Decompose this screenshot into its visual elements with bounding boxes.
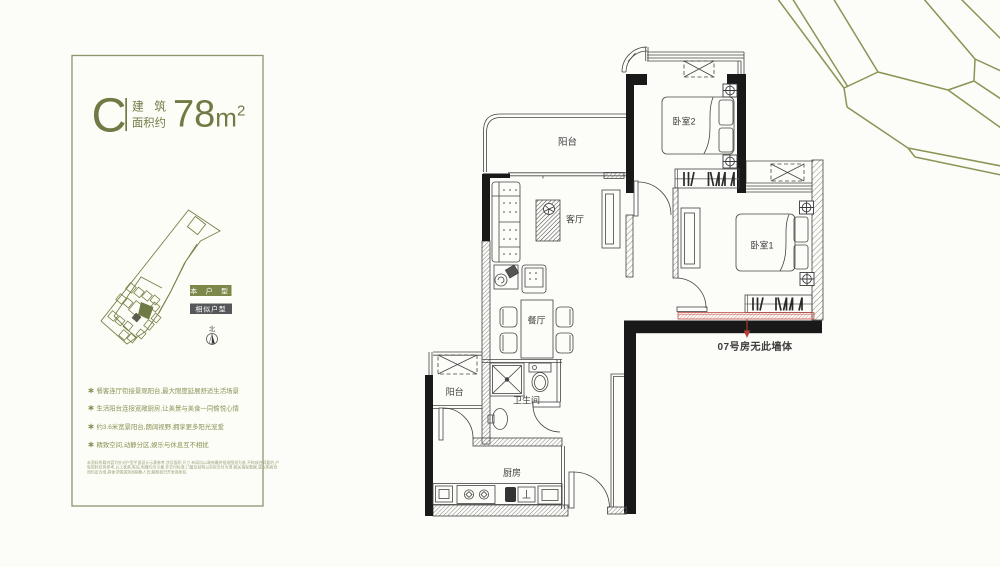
svg-text:阳台: 阳台 bbox=[446, 386, 464, 397]
svg-text:面积约: 面积约 bbox=[132, 116, 166, 130]
svg-text:相似户型: 相似户型 bbox=[195, 305, 226, 314]
svg-text:卧室2: 卧室2 bbox=[672, 116, 695, 127]
svg-text:卧室1: 卧室1 bbox=[750, 240, 773, 251]
svg-text:北: 北 bbox=[209, 325, 216, 333]
svg-text:C: C bbox=[92, 89, 127, 143]
svg-text:卫生间: 卫生间 bbox=[513, 395, 540, 406]
svg-text:同约定为准,具体详情请咨询销售人员,解释权归开发商所有.: 同约定为准,具体详情请咨询销售人员,解释权归开发商所有. bbox=[87, 469, 188, 474]
svg-text:07号房无此墙体: 07号房无此墙体 bbox=[717, 340, 793, 353]
svg-text:厨房: 厨房 bbox=[503, 467, 521, 478]
svg-text:餐客连厅衔接景观阳台,最大限度延展舒适生活场景: 餐客连厅衔接景观阳台,最大限度延展舒适生活场景 bbox=[97, 386, 240, 395]
svg-text:筑: 筑 bbox=[154, 100, 166, 114]
svg-text:本 户 型: 本 户 型 bbox=[190, 287, 231, 296]
svg-text:餐厅: 餐厅 bbox=[527, 315, 545, 326]
svg-text:生活阳台连接宽敞厨房,让美景与美食一同愉悦心情: 生活阳台连接宽敞厨房,让美景与美食一同愉悦心情 bbox=[97, 403, 240, 412]
svg-text:阳台: 阳台 bbox=[558, 136, 577, 148]
svg-text:约3.6米宽景阳台,朗阔视野,拥享更多阳光宠爱: 约3.6米宽景阳台,朗阔视野,拥享更多阳光宠爱 bbox=[97, 422, 224, 431]
svg-text:建: 建 bbox=[132, 100, 144, 114]
svg-text:精致空间,动静分区,娱乐与休息互不相扰: 精致空间,动静分区,娱乐与休息互不相扰 bbox=[97, 440, 210, 449]
svg-text:客厅: 客厅 bbox=[566, 214, 584, 225]
